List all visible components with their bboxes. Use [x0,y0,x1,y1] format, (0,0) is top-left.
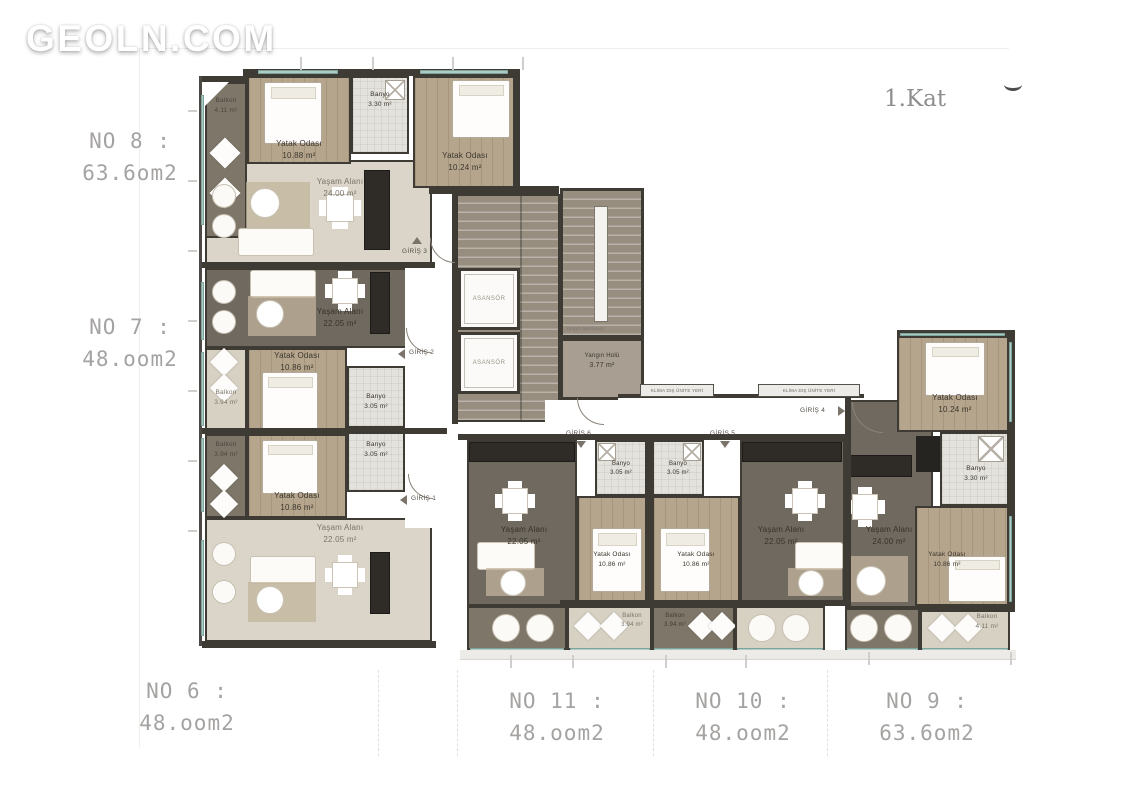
room-label-no9-bathroom: Banyo 3.30 m² [946,464,1006,484]
room-name: Balkon [614,612,650,621]
room-area: 22.05 m² [745,536,817,548]
room-area: 10.24 m² [413,162,517,174]
compass-mark-icon [1004,78,1022,91]
apartment-number: NO 8 : [60,126,200,158]
entrance-arrow-icon [400,495,407,505]
room-name: Yatak Odası [905,392,1005,404]
room-area: 22.05 m² [300,318,380,330]
room-area: 10.86 m² [577,560,647,570]
room-name: Yaşam Alanı [853,524,925,536]
lounge-chair-symbol [748,614,776,642]
apartment-number: NO 9 : [852,686,1002,718]
armchair-symbol [212,310,236,334]
shower-symbol [683,443,701,461]
round-table-symbol [250,188,280,218]
dimension-tick [665,655,667,668]
room-area: 10.88 m² [247,150,351,162]
dimension-tick [188,110,197,112]
room-name: Yatak Odası [252,490,342,502]
room-area: 22.05 m² [488,536,560,548]
dining-table-symbol [332,562,358,588]
floor-title: 1.Kat [884,86,946,112]
room-label-no10-bathroom: Banyo 3.05 m² [652,460,704,478]
bed-symbol [262,440,318,494]
room-label-no9-living: Yaşam Alanı 24.00 m² [853,524,925,548]
room-name: Banyo [349,440,403,450]
room-name: Yaşam Alanı [745,524,817,536]
apartment-area: 48.oom2 [668,718,818,750]
room-area: 24.00 m² [853,536,925,548]
window-segment [420,70,508,74]
room-area: 3.30 m² [946,474,1006,484]
room-name: Yaşam Alanı [300,176,380,188]
round-table-symbol [798,570,824,596]
room-label-no8-bedroom-1: Yatak Odası 10.88 m² [247,138,351,162]
label-separator [457,670,458,756]
dimension-tick [372,57,374,70]
room-name: Banyo [946,464,1006,474]
round-table-symbol [856,566,886,596]
room-name: Yatak Odası [577,550,647,560]
room-name: Banyo [351,90,409,100]
dining-table-symbol [332,278,358,304]
entrance-arrow-icon [576,441,586,448]
dimension-tick [188,390,197,392]
watermark: GEOLN.COM [26,18,277,60]
apartment-area: 48.oom2 [112,708,262,740]
room-label-no9-bedroom-1: Yatak Odası 10.24 m² [905,392,1005,416]
label-separator [378,670,379,756]
wall-segment [429,186,559,194]
room-label-no7-living: Yaşam Alanı 22.05 m² [300,306,380,330]
shower-symbol [978,436,1004,462]
entrance-label-2: GİRİŞ 2 [409,349,434,356]
kitchen-counter [742,442,842,462]
window-segment [1009,342,1012,422]
apartment-number: NO 11 : [482,686,632,718]
room-label-fire-hall: Yangın Holü 3.77 m² [562,352,642,372]
apartment-label-no6: NO 6 : 48.oom2 [112,676,262,739]
bed-symbol [925,342,985,396]
bed-symbol [262,372,318,430]
window-segment [1009,516,1012,602]
apartment-area: 48.oom2 [60,344,200,376]
room-area: 3.05 m² [349,450,403,460]
ac-unit-label: KLİMA DIŞ ÜNİTE YERİ [651,388,703,393]
wall-segment [202,428,447,434]
ac-unit-area: KLİMA DIŞ ÜNİTE YERİ [758,384,860,397]
room-label-no7-balcony: Balkon 3.94 m² [206,388,246,408]
window-segment [201,352,204,426]
label-separator [653,670,654,756]
elevator-label: ASANSÖR [473,360,506,366]
elevator-label: ASANSÖR [473,296,506,302]
room-area: 10.24 m² [905,404,1005,416]
floor-plan: ASANSÖR ASANSÖR Yangın Merdiveni Yangın … [0,0,1131,800]
room-area: 3.94 m² [206,398,246,408]
dimension-tick [188,250,197,252]
room-label-no10-balcony: Balkon 3.94 m² [655,612,695,630]
room-area: 4.11 m² [206,106,246,116]
room-area: 24.00 m² [300,188,380,200]
room-name: Yatak Odası [247,138,351,150]
window-segment [258,70,338,74]
room-label-no8-bedroom-2: Yatak Odası 10.24 m² [413,150,517,174]
room-area: 3.94 m² [206,450,246,460]
lounge-chair-symbol [850,614,878,642]
room-name: Banyo [595,460,647,469]
apartment-label-no7: NO 7 : 48.oom2 [60,312,200,375]
dimension-tick [452,57,454,70]
room-name: Yangın Holü [562,352,642,361]
sofa-symbol [250,270,316,298]
room-name: Yaşam Alanı [488,524,560,536]
wall-segment [920,604,1010,610]
elevator: ASANSÖR [458,332,520,394]
fire-stair-label: Yangın Merdiveni [566,326,604,331]
room-label-no8-bathroom: Banyo 3.30 m² [351,90,409,110]
entrance-label-5: GİRİŞ 5 [710,430,735,437]
terrace-platform [460,650,1016,660]
room-area: 4.11 m² [962,622,1012,632]
closet-symbol [916,436,940,472]
apartment-number: NO 6 : [112,676,262,708]
apartment-label-no10: NO 10 : 48.oom2 [668,686,818,749]
shower-symbol [598,443,616,461]
room-area: 3.94 m² [655,621,695,630]
window-segment [201,282,204,340]
room-area: 3.05 m² [349,402,403,412]
dimension-tick [745,655,747,668]
room-label-no9-balcony: Balkon 4.11 m² [962,612,1012,632]
entrance-arrow-icon [412,237,422,244]
kitchen-counter [469,442,575,462]
room-label-no6-bathroom: Banyo 3.05 m² [349,440,403,460]
wall-segment [560,600,845,606]
room-area: 3.05 m² [652,469,704,478]
wall-segment [202,76,247,82]
room-label-no11-living: Yaşam Alanı 22.05 m² [488,524,560,548]
room-area: 3.05 m² [595,469,647,478]
dimension-tick [300,57,302,70]
entrance-label-1: GİRİŞ 1 [411,495,436,502]
room-name: Balkon [655,612,695,621]
room-name: Balkon [206,440,246,450]
apartment-area: 48.oom2 [482,718,632,750]
entrance-label-3: GİRİŞ 3 [402,248,427,255]
room-area: 10.86 m² [252,362,342,374]
dining-table-symbol [852,494,878,520]
entrance-label-6: GİRİŞ 6 [566,430,591,437]
apartment-label-no9: NO 9 : 63.6om2 [852,686,1002,749]
room-label-no10-bedroom: Yatak Odası 10.86 m² [652,550,740,570]
armchair-symbol [212,542,236,566]
ac-unit-area: KLİMA DIŞ ÜNİTE YERİ [640,384,714,397]
room-label-no6-living: Yaşam Alanı 22.05 m² [300,522,380,546]
armchair-symbol [212,580,236,604]
entrance-arrow-icon [398,349,405,359]
kitchen-counter [370,552,390,614]
room-area: 22.05 m² [300,534,380,546]
room-label-no11-bathroom: Banyo 3.05 m² [595,460,647,478]
room-name: Yatak Odası [912,550,982,560]
room-area: 10.86 m² [912,560,982,570]
window-segment [201,95,204,225]
room-label-no11-balcony: Balkon 3.94 m² [614,612,650,630]
stair-rail [594,206,608,322]
wall-segment [458,434,850,440]
apartment-area: 63.6om2 [852,718,1002,750]
armchair-symbol [212,184,236,208]
room-label-no8-living: Yaşam Alanı 24.00 m² [300,176,380,200]
apartment-label-no8: NO 8 : 63.6om2 [60,126,200,189]
room-name: Yaşam Alanı [300,522,380,534]
room-name: Banyo [349,392,403,402]
room-label-no7-bathroom: Banyo 3.05 m² [349,392,403,412]
room-name: Yatak Odası [252,350,342,362]
room-label-no8-balcony: Balkon 4.11 m² [206,96,246,116]
bed-symbol [452,80,510,138]
corridor [618,398,864,432]
room-label-no6-bedroom: Yatak Odası 10.86 m² [252,490,342,514]
armchair-symbol [212,214,236,238]
room-area: 3.94 m² [614,621,650,630]
entrance-arrow-icon [838,406,845,416]
round-table-symbol [256,586,284,614]
lounge-chair-symbol [884,614,912,642]
apartment-label-no11: NO 11 : 48.oom2 [482,686,632,749]
dimension-tick [188,530,197,532]
room-name: Yatak Odası [652,550,740,560]
wall-segment [845,398,851,610]
room-label-no7-bedroom: Yatak Odası 10.86 m² [252,350,342,374]
stair-divider [520,196,522,420]
window-segment [201,438,204,512]
dining-table-symbol [792,488,818,514]
wall-segment [202,641,436,648]
round-table-symbol [256,300,284,328]
room-name: Balkon [206,96,246,106]
dining-table-symbol [502,488,528,514]
apartment-number: NO 7 : [60,312,200,344]
room-area: 3.77 m² [562,361,642,372]
lounge-chair-symbol [526,614,554,642]
lounge-chair-symbol [492,614,520,642]
room-label-no6-balcony: Balkon 3.94 m² [206,440,246,460]
room-area: 3.30 m² [351,100,409,110]
wall-segment [202,262,435,268]
room-name: Banyo [652,460,704,469]
apartment-area: 63.6om2 [60,158,200,190]
room-area: 10.86 m² [252,502,342,514]
dimension-tick [522,57,524,70]
room-name: Yaşam Alanı [300,306,380,318]
kitchen-counter [848,455,912,477]
room-label-no11-bedroom: Yatak Odası 10.86 m² [577,550,647,570]
label-separator [827,670,828,756]
room-label-no10-living: Yaşam Alanı 22.05 m² [745,524,817,548]
dimension-tick [572,655,574,668]
window-segment [900,333,1005,336]
dimension-tick [510,655,512,668]
entrance-arrow-icon [720,441,730,448]
ac-unit-label: KLİMA DIŞ ÜNİTE YERİ [783,388,835,393]
room-label-no9-bedroom-2: Yatak Odası 10.86 m² [912,550,982,570]
wall-segment [452,194,458,424]
armchair-symbol [212,280,236,304]
round-table-symbol [500,570,526,596]
apartment-number: NO 10 : [668,686,818,718]
window-segment [201,540,204,636]
sofa-symbol [250,556,316,584]
room-name: Yatak Odası [413,150,517,162]
room-name: Balkon [206,388,246,398]
sofa-symbol [238,228,314,256]
elevator: ASANSÖR [458,268,520,330]
dimension-tick [868,652,870,665]
room-name: Balkon [962,612,1012,622]
dimension-tick [188,460,197,462]
bed-symbol [264,82,322,144]
lounge-chair-symbol [782,614,810,642]
dimension-tick [1010,652,1012,665]
room-area: 10.86 m² [652,560,740,570]
entrance-label-4: GİRİŞ 4 [800,407,825,414]
